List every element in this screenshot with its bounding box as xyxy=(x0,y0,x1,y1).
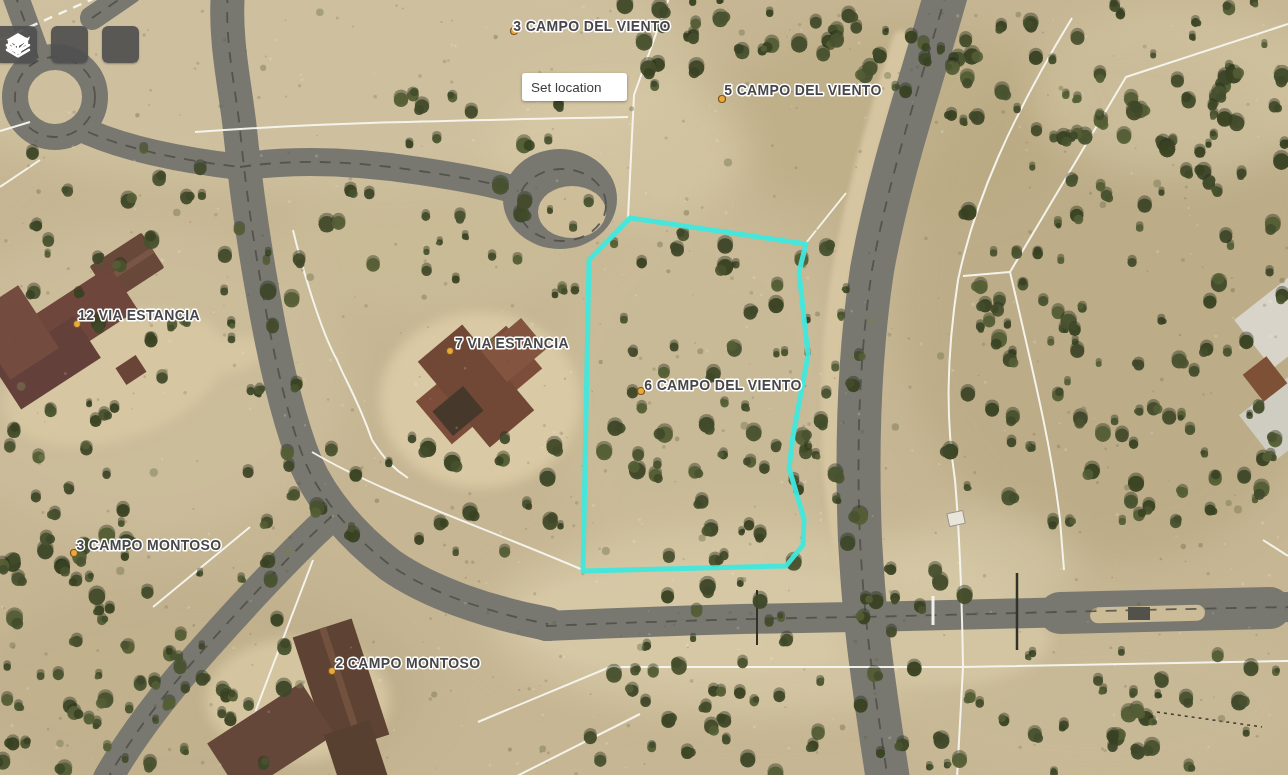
parcel-3-campo-del-viento[interactable]: 3 CAMPO DEL VIENTO xyxy=(511,18,671,35)
parcel-label: 6 CAMPO DEL VIENTO xyxy=(644,377,801,393)
parcel-6-campo-del-viento[interactable]: 6 CAMPO DEL VIENTO xyxy=(638,377,802,395)
parcel-label: 2 CAMPO MONTOSO xyxy=(335,655,480,671)
draw-button[interactable] xyxy=(102,26,139,63)
parcel-label: 12 VIA ESTANCIA xyxy=(78,307,200,323)
directions-button[interactable] xyxy=(51,26,88,63)
draw-ellipse-icon xyxy=(0,26,36,62)
parcel-label: 5 CAMPO DEL VIENTO xyxy=(724,82,881,98)
parcel-label: 3 CAMPO MONTOSO xyxy=(76,537,221,553)
set-location-box[interactable]: Set location xyxy=(522,73,627,101)
map-toolbar xyxy=(0,26,139,63)
parcel-label: 7 VIA ESTANCIA xyxy=(455,335,569,351)
map-canvas[interactable]: 3 CAMPO DEL VIENTO 5 CAMPO DEL VIENTO 12… xyxy=(0,0,1288,775)
parcel-marker xyxy=(329,668,336,675)
map-viewer: 3 CAMPO DEL VIENTO 5 CAMPO DEL VIENTO 12… xyxy=(0,0,1288,775)
parcel-marker xyxy=(447,348,454,355)
parcel-label: 3 CAMPO DEL VIENTO xyxy=(513,18,670,34)
